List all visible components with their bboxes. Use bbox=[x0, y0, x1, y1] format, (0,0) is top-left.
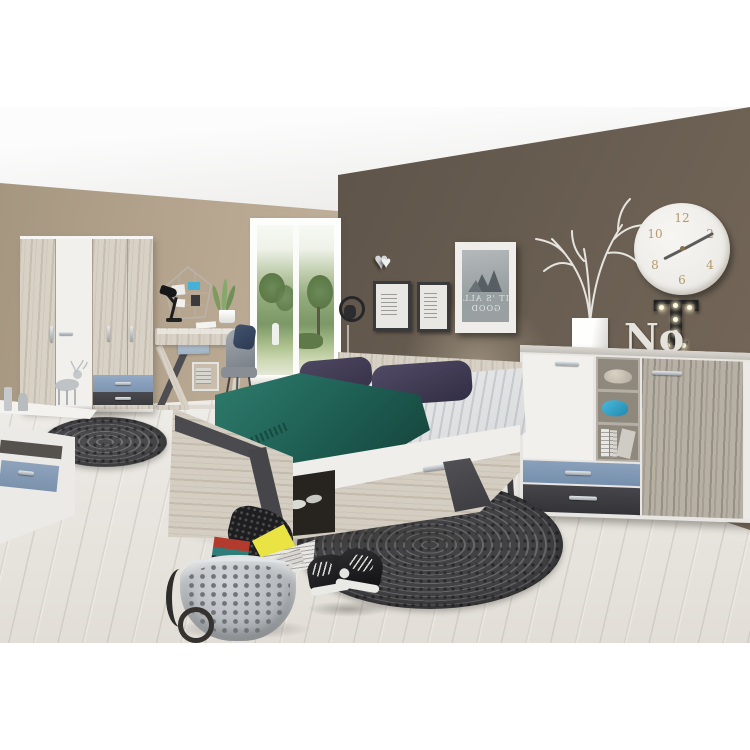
wardrobe-handle-4 bbox=[130, 326, 133, 341]
wardrobe-drawer-blue bbox=[93, 375, 153, 392]
wardrobe-handle-3 bbox=[107, 326, 110, 341]
clock-minute-hand bbox=[683, 232, 714, 250]
jacket-on-chair bbox=[232, 324, 256, 351]
lowboard-drawer-blue bbox=[0, 460, 59, 492]
sneaker-right bbox=[335, 546, 386, 597]
lowboard-shelf-gap bbox=[0, 440, 63, 459]
clock-numeral-6: 6 bbox=[678, 273, 686, 287]
clock-numeral-12: 12 bbox=[674, 211, 689, 225]
wardrobe bbox=[20, 236, 153, 412]
wardrobe-door-1 bbox=[20, 239, 55, 409]
wardrobe-door-3 bbox=[93, 239, 127, 375]
clock-center bbox=[680, 246, 685, 251]
page: { "page": { "background": "#ffffff", "ty… bbox=[0, 0, 750, 750]
window-pane-right bbox=[299, 225, 334, 375]
poster-print: IT 'S ALL GOOD bbox=[462, 250, 509, 322]
poster-mountains-icon bbox=[468, 266, 504, 292]
silver-vase bbox=[18, 393, 28, 411]
book bbox=[601, 429, 609, 457]
clock-numeral-4: 4 bbox=[706, 258, 714, 272]
poster-text-line1: IT 'S ALL bbox=[462, 294, 509, 304]
sideboard bbox=[520, 345, 750, 523]
small-frame-1 bbox=[373, 281, 411, 331]
poster-text-line2: GOOD bbox=[462, 304, 509, 314]
sideboard-open-shelves bbox=[596, 357, 640, 463]
poster-frame: IT 'S ALL GOOD bbox=[455, 242, 516, 333]
wardrobe-handle-1 bbox=[50, 326, 53, 342]
bowl bbox=[604, 369, 632, 384]
wardrobe-drawer-grey bbox=[93, 392, 153, 405]
decorative-branches bbox=[518, 195, 668, 325]
room-photo: ♥♥ IT 'S ALL GOOD 12 2 4 6 8 10 bbox=[0, 107, 750, 643]
chair-seat bbox=[221, 367, 257, 378]
garden-statue bbox=[272, 323, 279, 345]
pinned-card-blue bbox=[188, 282, 200, 290]
wire-basket bbox=[192, 362, 219, 391]
basket-handle-loop bbox=[178, 607, 214, 643]
sideboard-door-oak bbox=[642, 358, 743, 519]
book-leaning bbox=[616, 428, 636, 459]
window-mullion bbox=[293, 225, 299, 375]
candlestick bbox=[4, 387, 12, 411]
wardrobe-handle-2 bbox=[59, 332, 73, 335]
blue-cloth bbox=[602, 400, 628, 417]
sideboard-door-white bbox=[523, 354, 593, 460]
small-frame-2 bbox=[417, 282, 450, 332]
plant-pot bbox=[219, 310, 235, 323]
pinned-clip bbox=[191, 295, 200, 306]
sideboard-side-panel bbox=[744, 362, 750, 519]
wardrobe-door-4 bbox=[128, 239, 153, 375]
sideboard-drawer-blue bbox=[523, 460, 640, 486]
heart-sconce-icon: ♥♥ bbox=[374, 250, 402, 276]
window-pane-left bbox=[257, 225, 293, 375]
